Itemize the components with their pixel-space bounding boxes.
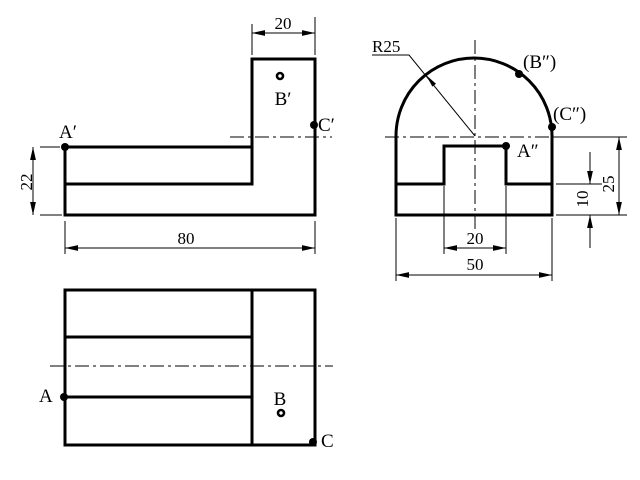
point-b-prime-label: B′ — [275, 89, 292, 110]
point-b-label: B — [274, 389, 287, 410]
side-dim-25-value: 25 — [599, 176, 618, 193]
side-dim-10-value: 10 — [573, 191, 592, 208]
point-c-prime-label: C′ — [318, 115, 335, 136]
front-dim-22-value: 22 — [17, 174, 36, 191]
drawing-page: 20 22 80 A′ B′ C′ 25 10 20 50 R25 A″ — [0, 0, 640, 480]
side-radius-leader-line — [372, 55, 475, 136]
front-dim-20-value: 20 — [275, 14, 292, 33]
point-b-prime-marker — [277, 73, 283, 79]
point-a-doubleprime-dot — [502, 142, 510, 150]
side-radius-arrowhead — [426, 75, 436, 87]
engineering-drawing-canvas: 20 22 80 A′ B′ C′ 25 10 20 50 R25 A″ — [0, 0, 640, 480]
point-a-label: A — [39, 386, 53, 407]
side-dim-20-value: 20 — [467, 229, 484, 248]
front-view-outline — [65, 59, 315, 215]
point-c-prime-dot — [310, 121, 318, 129]
point-a-doubleprime-label: A″ — [517, 141, 539, 162]
side-dim-50-value: 50 — [467, 255, 484, 274]
side-radius-value: R25 — [372, 37, 400, 56]
point-c-label: C — [321, 431, 334, 452]
point-c-doubleprime-label: (C″) — [553, 104, 586, 125]
point-b-doubleprime-label: (B″) — [523, 52, 556, 73]
point-c-dot — [309, 438, 317, 446]
top-view-outline — [65, 290, 315, 445]
point-a-dot — [60, 393, 68, 401]
point-a-prime-label: A′ — [59, 122, 77, 143]
point-a-prime-dot — [61, 143, 69, 151]
front-dim-22-extension-lines — [40, 147, 62, 215]
front-dim-80-value: 80 — [178, 229, 195, 248]
point-b-doubleprime-dot — [515, 70, 523, 78]
point-b-marker — [278, 410, 284, 416]
